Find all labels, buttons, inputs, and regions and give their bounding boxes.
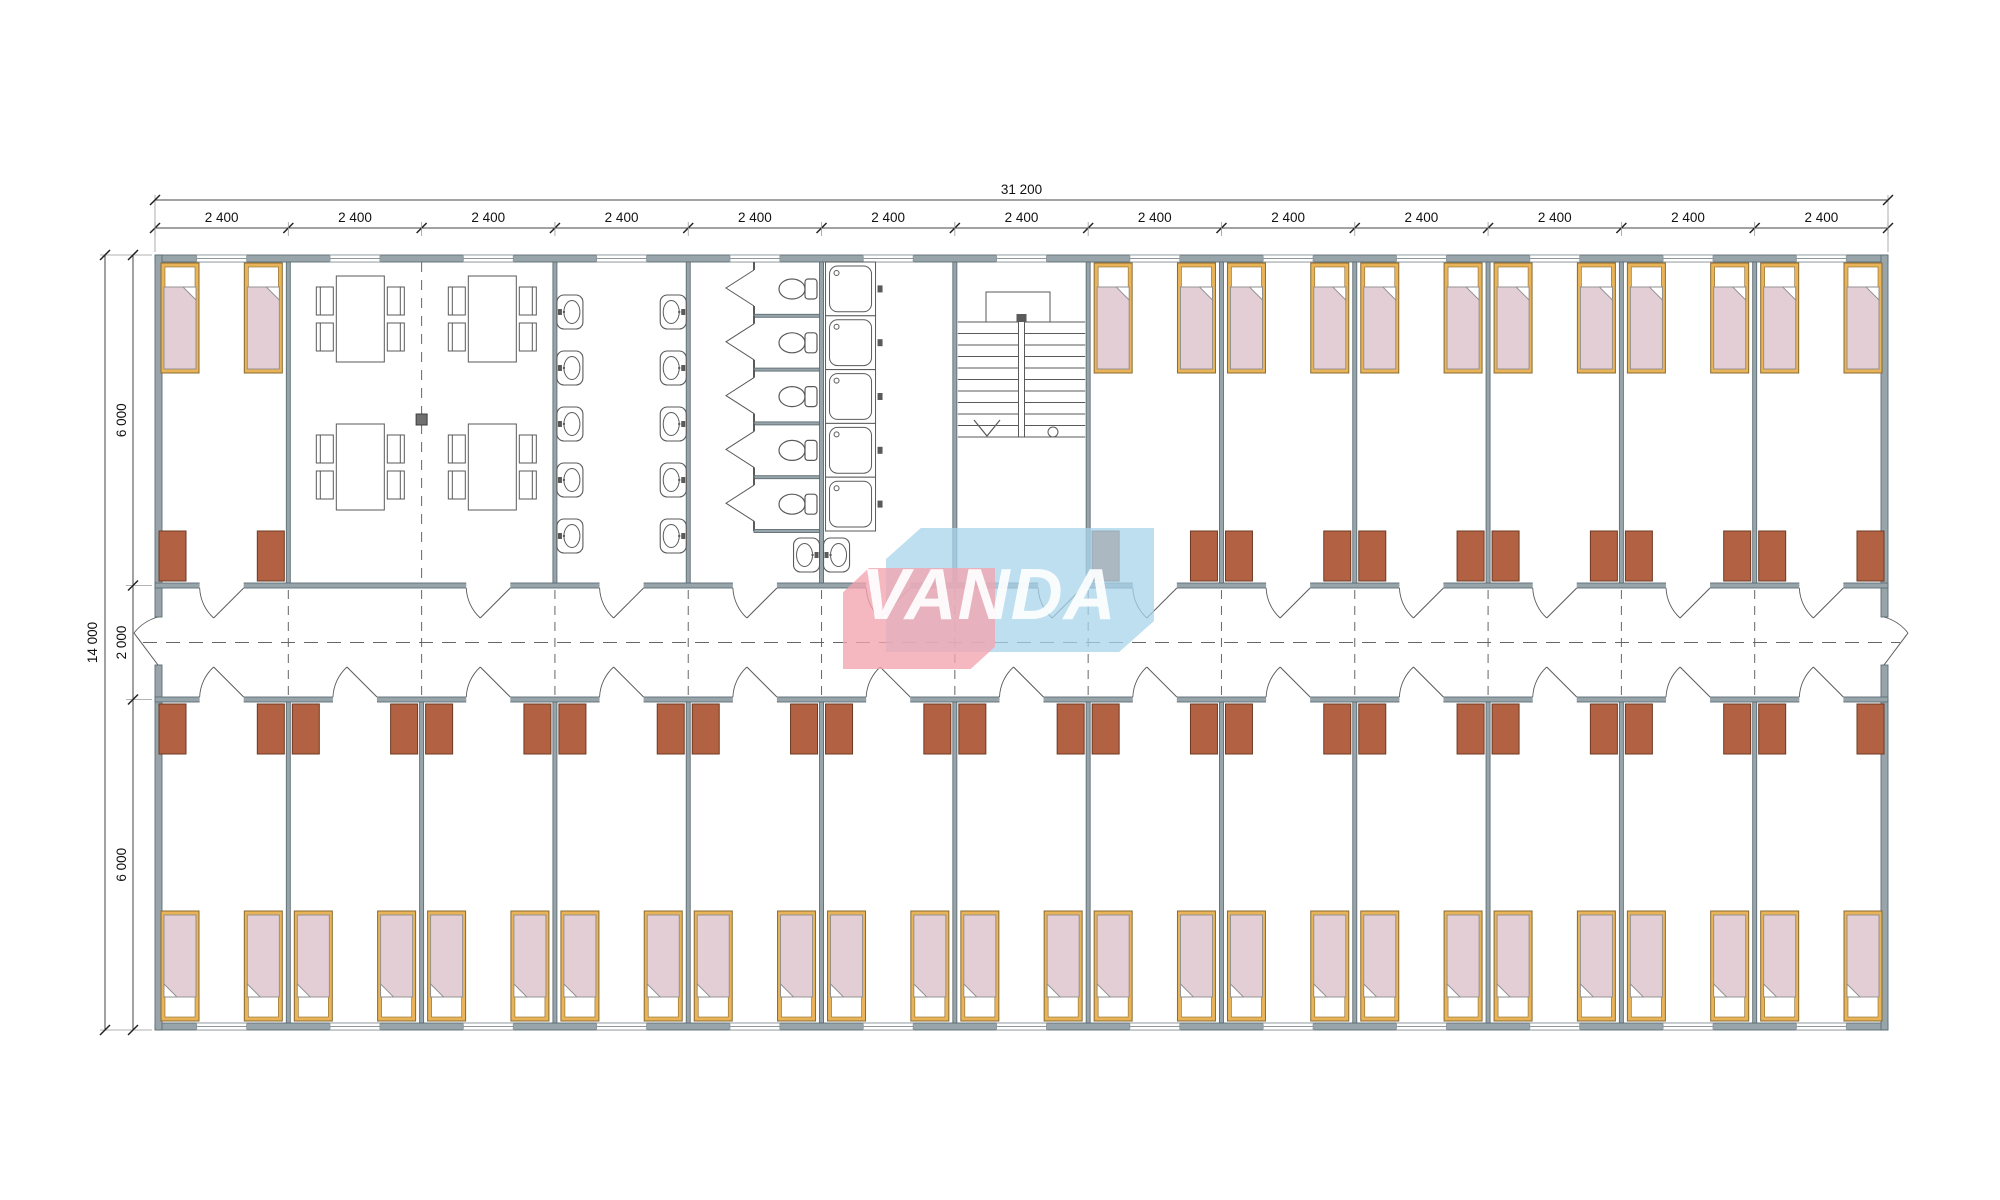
blanket bbox=[1580, 915, 1612, 997]
door-swing bbox=[1399, 588, 1413, 618]
partition-wall bbox=[1619, 262, 1623, 583]
partition-wall bbox=[1753, 262, 1757, 583]
door-swing bbox=[1266, 667, 1280, 697]
wardrobe bbox=[257, 704, 284, 754]
shower-valve bbox=[878, 339, 883, 346]
dimension-label: 2 400 bbox=[738, 210, 772, 225]
chair bbox=[316, 471, 333, 499]
door bbox=[866, 667, 910, 703]
door-leaf bbox=[1052, 588, 1082, 618]
chair bbox=[316, 435, 333, 463]
bed bbox=[1227, 263, 1265, 373]
bed bbox=[778, 911, 816, 1021]
chair bbox=[316, 287, 333, 315]
partition-wall bbox=[953, 702, 957, 1023]
dimension-label: 2 400 bbox=[1671, 210, 1705, 225]
bed bbox=[1627, 263, 1665, 373]
door bbox=[466, 582, 510, 618]
door-swing bbox=[200, 667, 214, 697]
blanket bbox=[1047, 915, 1079, 997]
wardrobe bbox=[1857, 704, 1884, 754]
blanket bbox=[914, 915, 946, 997]
wardrobe bbox=[524, 704, 551, 754]
chair bbox=[316, 323, 333, 351]
blanket bbox=[1447, 287, 1479, 369]
stall-partition bbox=[754, 314, 820, 317]
dimension-label: 6 000 bbox=[114, 403, 129, 437]
door bbox=[733, 667, 777, 703]
blanket bbox=[1364, 287, 1396, 369]
door-swing bbox=[1799, 667, 1813, 697]
door-leaf bbox=[1413, 667, 1443, 697]
bed bbox=[1094, 911, 1132, 1021]
blanket bbox=[1364, 915, 1396, 997]
shower-valve bbox=[878, 501, 883, 508]
door-leaf bbox=[614, 667, 644, 697]
wardrobe bbox=[1857, 531, 1884, 581]
bed bbox=[161, 263, 199, 373]
chair bbox=[387, 287, 404, 315]
column-marker bbox=[416, 414, 427, 425]
door-leaf bbox=[480, 667, 510, 697]
bed bbox=[1577, 263, 1615, 373]
door-leaf bbox=[214, 667, 244, 697]
wardrobe bbox=[1590, 531, 1617, 581]
wardrobe bbox=[426, 704, 453, 754]
dimension-label: 2 400 bbox=[1271, 210, 1305, 225]
bed bbox=[1844, 263, 1882, 373]
wardrobe bbox=[1457, 531, 1484, 581]
door bbox=[333, 667, 377, 703]
bed bbox=[1094, 263, 1132, 373]
door-leaf bbox=[880, 667, 910, 697]
wardrobe bbox=[826, 704, 853, 754]
door-swing bbox=[733, 667, 747, 697]
partition-wall bbox=[1619, 702, 1623, 1023]
door bbox=[200, 582, 244, 618]
blanket bbox=[1180, 915, 1212, 997]
corridor-wall-top bbox=[155, 583, 1888, 588]
blanket bbox=[247, 287, 279, 369]
blanket bbox=[697, 915, 729, 997]
door-leaf bbox=[1680, 667, 1710, 697]
blanket bbox=[564, 915, 596, 997]
dimension-label: 2 400 bbox=[1538, 210, 1572, 225]
partition-wall bbox=[1353, 702, 1357, 1023]
sanitary-fixtures bbox=[557, 262, 883, 572]
shower-tray bbox=[826, 262, 883, 316]
wash-basin bbox=[794, 538, 820, 572]
wash-basin bbox=[557, 407, 583, 441]
door-leaf bbox=[214, 588, 244, 618]
chair bbox=[519, 471, 536, 499]
door-leaf bbox=[747, 588, 777, 618]
wardrobe bbox=[1225, 531, 1252, 581]
door-swing bbox=[866, 667, 880, 697]
wardrobe bbox=[391, 704, 418, 754]
door-leaf bbox=[1813, 588, 1843, 618]
door-leaf bbox=[1813, 667, 1843, 697]
wardrobe bbox=[1190, 531, 1217, 581]
blanket bbox=[1180, 287, 1212, 369]
partition-wall bbox=[1086, 262, 1090, 583]
door-swing bbox=[1038, 588, 1052, 618]
wardrobe bbox=[1492, 531, 1519, 581]
partition-wall bbox=[1219, 262, 1223, 583]
bed bbox=[961, 911, 999, 1021]
blanket bbox=[247, 915, 279, 997]
door bbox=[600, 667, 644, 703]
chair bbox=[448, 435, 465, 463]
dimension-label: 2 400 bbox=[871, 210, 905, 225]
door-leaf bbox=[880, 588, 910, 618]
bed bbox=[1627, 911, 1665, 1021]
wardrobe bbox=[1225, 704, 1252, 754]
partition-wall bbox=[1219, 702, 1223, 1023]
door-swing bbox=[600, 667, 614, 697]
dimension-label: 2 400 bbox=[338, 210, 372, 225]
door-swing bbox=[1266, 588, 1280, 618]
stair-marker bbox=[1048, 427, 1058, 437]
blanket bbox=[431, 915, 463, 997]
dimension-label: 2 400 bbox=[605, 210, 639, 225]
blanket bbox=[1630, 287, 1662, 369]
stall-door bbox=[726, 485, 754, 521]
door-leaf bbox=[1280, 588, 1310, 618]
toilet bbox=[779, 494, 817, 514]
chair bbox=[519, 323, 536, 351]
chair bbox=[448, 287, 465, 315]
partition-wall bbox=[420, 702, 424, 1023]
door bbox=[733, 582, 777, 618]
wardrobe bbox=[791, 704, 818, 754]
chair bbox=[387, 471, 404, 499]
blanket bbox=[164, 287, 196, 369]
stall-door bbox=[726, 324, 754, 360]
blanket bbox=[1314, 287, 1346, 369]
wash-basin bbox=[660, 351, 686, 385]
dining-table bbox=[336, 276, 384, 362]
wardrobe bbox=[1359, 704, 1386, 754]
wardrobe bbox=[292, 704, 319, 754]
wardrobe bbox=[924, 704, 951, 754]
door bbox=[1000, 667, 1044, 703]
partition-wall bbox=[286, 702, 290, 1023]
bed bbox=[694, 911, 732, 1021]
bed bbox=[1361, 263, 1399, 373]
shower-tray bbox=[826, 370, 883, 424]
blanket bbox=[1230, 287, 1262, 369]
wardrobe bbox=[1190, 704, 1217, 754]
staircase bbox=[958, 292, 1085, 437]
door-swing bbox=[466, 588, 480, 618]
wardrobe bbox=[1625, 704, 1652, 754]
partition-wall bbox=[553, 262, 557, 583]
wash-basin bbox=[660, 295, 686, 329]
partition-wall bbox=[286, 262, 290, 583]
partition-wall bbox=[686, 702, 690, 1023]
wash-basin bbox=[660, 463, 686, 497]
door bbox=[200, 667, 244, 703]
partition-wall bbox=[1486, 262, 1490, 583]
shower-tray bbox=[826, 477, 883, 531]
wardrobe bbox=[1057, 704, 1084, 754]
bed bbox=[828, 911, 866, 1021]
wardrobe bbox=[692, 704, 719, 754]
bed bbox=[1711, 263, 1749, 373]
dimension-label: 2 400 bbox=[1005, 210, 1039, 225]
dimension-label: 2 400 bbox=[1405, 210, 1439, 225]
blanket bbox=[297, 915, 329, 997]
chair bbox=[448, 471, 465, 499]
wardrobe bbox=[1492, 704, 1519, 754]
shower-valve bbox=[878, 447, 883, 454]
door bbox=[600, 582, 644, 618]
door-swing bbox=[466, 667, 480, 697]
blanket bbox=[1630, 915, 1662, 997]
wash-basin bbox=[557, 351, 583, 385]
door-leaf bbox=[1147, 588, 1177, 618]
dimension-label: 2 400 bbox=[471, 210, 505, 225]
partition-wall bbox=[686, 262, 690, 583]
door-leaf bbox=[747, 667, 777, 697]
door bbox=[866, 582, 910, 618]
door-leaf bbox=[1014, 667, 1044, 697]
bed bbox=[1761, 911, 1799, 1021]
bed bbox=[1711, 911, 1749, 1021]
dimension-label: 2 000 bbox=[114, 626, 129, 660]
door bbox=[466, 667, 510, 703]
blanket bbox=[1764, 287, 1796, 369]
wash-basin bbox=[557, 463, 583, 497]
blanket bbox=[647, 915, 679, 997]
wash-basin bbox=[557, 519, 583, 553]
door-swing bbox=[1000, 667, 1014, 697]
blanket bbox=[514, 915, 546, 997]
down-arrow bbox=[974, 420, 1000, 436]
bed bbox=[161, 911, 199, 1021]
wardrobe bbox=[1625, 531, 1652, 581]
door-swing bbox=[1399, 667, 1413, 697]
bed bbox=[244, 263, 282, 373]
dining-table bbox=[468, 276, 516, 362]
door bbox=[1133, 667, 1177, 703]
door-leaf bbox=[1547, 667, 1577, 697]
blanket bbox=[1580, 287, 1612, 369]
wardrobe bbox=[1759, 531, 1786, 581]
blanket bbox=[1447, 915, 1479, 997]
toilet bbox=[779, 387, 817, 407]
bed bbox=[294, 911, 332, 1021]
partition-wall bbox=[820, 262, 824, 583]
stall-partition bbox=[754, 476, 820, 479]
blanket bbox=[164, 915, 196, 997]
bed bbox=[1311, 911, 1349, 1021]
wash-basin bbox=[824, 538, 850, 572]
dimension-label: 2 400 bbox=[1138, 210, 1172, 225]
blanket bbox=[1764, 915, 1796, 997]
chair bbox=[387, 323, 404, 351]
wardrobe bbox=[1457, 704, 1484, 754]
wardrobe bbox=[257, 531, 284, 581]
door-leaf bbox=[1680, 588, 1710, 618]
stair-stringer bbox=[1019, 318, 1025, 437]
door-swing bbox=[1533, 667, 1547, 697]
door-leaf bbox=[347, 667, 377, 697]
blanket bbox=[1497, 287, 1529, 369]
door-swing bbox=[600, 588, 614, 618]
bed bbox=[1361, 911, 1399, 1021]
wardrobe bbox=[959, 704, 986, 754]
dimension-label: 2 400 bbox=[205, 210, 239, 225]
bed bbox=[1494, 911, 1532, 1021]
bed bbox=[244, 911, 282, 1021]
bed bbox=[1177, 911, 1215, 1021]
partition-wall bbox=[1486, 702, 1490, 1023]
door bbox=[1666, 667, 1710, 703]
bed bbox=[911, 911, 949, 1021]
wash-basin bbox=[660, 407, 686, 441]
chair bbox=[448, 323, 465, 351]
partition-wall bbox=[820, 702, 824, 1023]
blanket bbox=[831, 915, 863, 997]
door bbox=[1038, 582, 1082, 618]
wardrobe bbox=[1724, 531, 1751, 581]
door-leaf bbox=[614, 588, 644, 618]
stall-door bbox=[726, 378, 754, 414]
blanket bbox=[1314, 915, 1346, 997]
stair-newel bbox=[1017, 314, 1027, 322]
door-swing bbox=[733, 588, 747, 618]
toilet bbox=[779, 279, 817, 299]
blanket bbox=[1847, 287, 1879, 369]
stall-door bbox=[726, 431, 754, 467]
door-leaf bbox=[1547, 588, 1577, 618]
door-swing bbox=[1799, 588, 1813, 618]
blanket bbox=[1097, 287, 1129, 369]
stall-partition bbox=[754, 368, 820, 371]
door-swing bbox=[1666, 588, 1680, 618]
wardrobe bbox=[1092, 531, 1119, 581]
chair bbox=[387, 435, 404, 463]
bed bbox=[1844, 911, 1882, 1021]
floor-plan-canvas: 31 2002 4002 4002 4002 4002 4002 4002 40… bbox=[0, 0, 2000, 1200]
bed bbox=[1311, 263, 1349, 373]
bed bbox=[1444, 911, 1482, 1021]
blanket bbox=[781, 915, 813, 997]
chair bbox=[519, 287, 536, 315]
wardrobe bbox=[1324, 531, 1351, 581]
corridor-end-door bbox=[134, 617, 1908, 665]
door bbox=[1799, 582, 1843, 618]
partition-wall bbox=[953, 262, 957, 583]
door-leaf bbox=[1413, 588, 1443, 618]
partition-wall bbox=[553, 702, 557, 1023]
dining-table bbox=[336, 424, 384, 510]
door-swing bbox=[866, 588, 880, 618]
bed bbox=[561, 911, 599, 1021]
wardrobe bbox=[159, 531, 186, 581]
blanket bbox=[964, 915, 996, 997]
bed bbox=[1494, 263, 1532, 373]
wardrobe bbox=[1590, 704, 1617, 754]
door bbox=[1266, 667, 1310, 703]
blanket bbox=[1714, 915, 1746, 997]
blanket bbox=[1497, 915, 1529, 997]
bed bbox=[644, 911, 682, 1021]
wash-basin bbox=[660, 519, 686, 553]
stall-partition bbox=[754, 530, 820, 533]
bed bbox=[1044, 911, 1082, 1021]
blanket bbox=[381, 915, 413, 997]
door-swing bbox=[1133, 667, 1147, 697]
wardrobe bbox=[159, 704, 186, 754]
shower-valve bbox=[878, 285, 883, 292]
dining-table bbox=[468, 424, 516, 510]
blanket bbox=[1714, 287, 1746, 369]
chair bbox=[519, 435, 536, 463]
dimension-label: 31 200 bbox=[1001, 182, 1042, 197]
wardrobe bbox=[1759, 704, 1786, 754]
door bbox=[1666, 582, 1710, 618]
door bbox=[1399, 582, 1443, 618]
bed bbox=[1227, 911, 1265, 1021]
bed bbox=[378, 911, 416, 1021]
door-swing bbox=[1533, 588, 1547, 618]
door-leaf bbox=[1147, 667, 1177, 697]
bed bbox=[1444, 263, 1482, 373]
stall-door bbox=[726, 270, 754, 306]
bed bbox=[1761, 263, 1799, 373]
toilet bbox=[779, 440, 817, 460]
door-leaf bbox=[1280, 667, 1310, 697]
door bbox=[1533, 667, 1577, 703]
door bbox=[1799, 667, 1843, 703]
shower-tray bbox=[826, 316, 883, 370]
partition-wall bbox=[1753, 702, 1757, 1023]
bed bbox=[511, 911, 549, 1021]
blanket bbox=[1097, 915, 1129, 997]
wash-basin bbox=[557, 295, 583, 329]
partition-wall bbox=[1086, 702, 1090, 1023]
wardrobe bbox=[1359, 531, 1386, 581]
dimension-label: 2 400 bbox=[1804, 210, 1838, 225]
shower-tray bbox=[826, 423, 883, 477]
door-leaf bbox=[480, 588, 510, 618]
door-swing bbox=[200, 588, 214, 618]
floor-plan-drawing: 31 2002 4002 4002 4002 4002 4002 4002 40… bbox=[0, 0, 2000, 1200]
door bbox=[1533, 582, 1577, 618]
bed bbox=[1577, 911, 1615, 1021]
wardrobe bbox=[657, 704, 684, 754]
dimension-label: 6 000 bbox=[114, 848, 129, 882]
shower-valve bbox=[878, 393, 883, 400]
wardrobe bbox=[1724, 704, 1751, 754]
door bbox=[1399, 667, 1443, 703]
partition-wall bbox=[1353, 262, 1357, 583]
bed bbox=[1177, 263, 1215, 373]
wardrobe bbox=[1324, 704, 1351, 754]
blanket bbox=[1847, 915, 1879, 997]
blanket bbox=[1230, 915, 1262, 997]
wardrobe bbox=[559, 704, 586, 754]
door-swing bbox=[333, 667, 347, 697]
door-swing bbox=[1666, 667, 1680, 697]
dimension-label: 14 000 bbox=[85, 622, 100, 663]
toilet bbox=[779, 333, 817, 353]
door bbox=[1266, 582, 1310, 618]
door bbox=[1133, 582, 1177, 618]
